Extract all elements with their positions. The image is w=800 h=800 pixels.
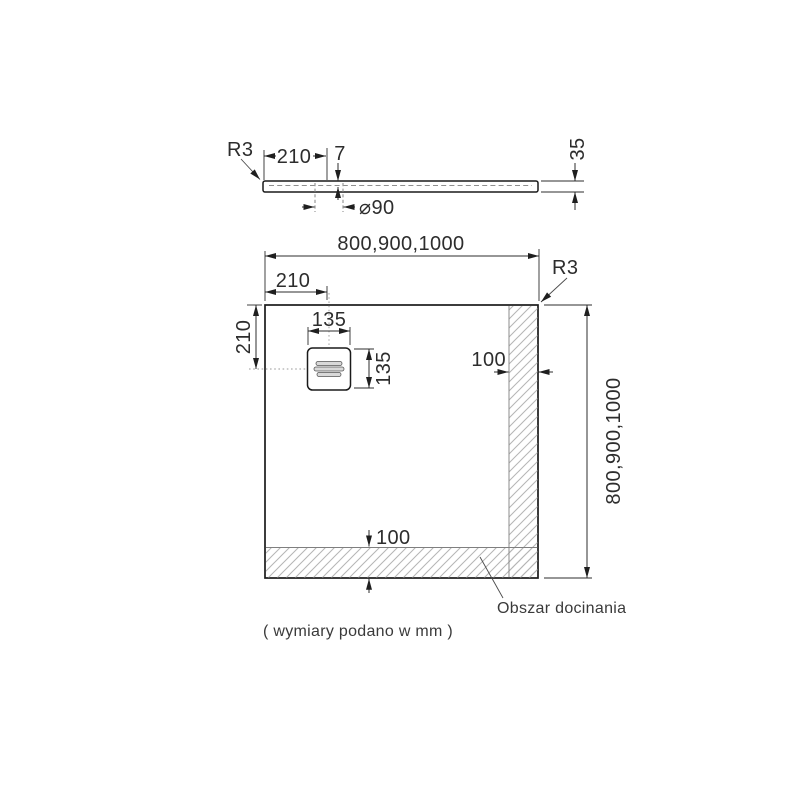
plan-dim-height: 800,900,1000 — [603, 377, 625, 504]
plan-view: 800,900,1000 210 R3 210 135 135 100 100 — [233, 233, 626, 617]
side-radius-label: R3 — [227, 139, 253, 161]
drain-slot — [314, 367, 344, 371]
drain-slot — [317, 373, 341, 377]
trim-area-label: Obszar docinania — [497, 600, 626, 617]
drain-slot — [316, 362, 342, 366]
plan-dim-width: 800,900,1000 — [337, 233, 464, 255]
plan-dim-100-bottom: 100 — [376, 527, 411, 549]
trim-area-bottom — [266, 548, 538, 578]
side-view: R3 210 7 35 ⌀90 — [227, 137, 589, 219]
plan-dim-100-right: 100 — [471, 349, 506, 371]
side-radius-leader — [241, 159, 260, 180]
side-dim-7: 7 — [334, 143, 346, 165]
plan-dim-210-top: 210 — [276, 270, 311, 292]
drain-cover — [308, 348, 351, 390]
side-dim-d90: ⌀90 — [359, 197, 395, 219]
tray-profile — [263, 181, 538, 192]
side-dim-210: 210 — [277, 146, 312, 168]
plan-radius-leader — [541, 278, 567, 302]
plan-dim-135-width: 135 — [312, 309, 347, 331]
trim-area-right — [509, 306, 538, 578]
side-dim-35: 35 — [567, 137, 589, 160]
plan-dim-210-left: 210 — [233, 320, 255, 355]
technical-drawing: R3 210 7 35 ⌀90 — [0, 0, 800, 800]
units-note: ( wymiary podano w mm ) — [263, 623, 453, 640]
plan-dim-135-height: 135 — [373, 351, 395, 386]
notes: ( wymiary podano w mm ) — [263, 623, 453, 640]
plan-radius-label: R3 — [552, 257, 578, 279]
